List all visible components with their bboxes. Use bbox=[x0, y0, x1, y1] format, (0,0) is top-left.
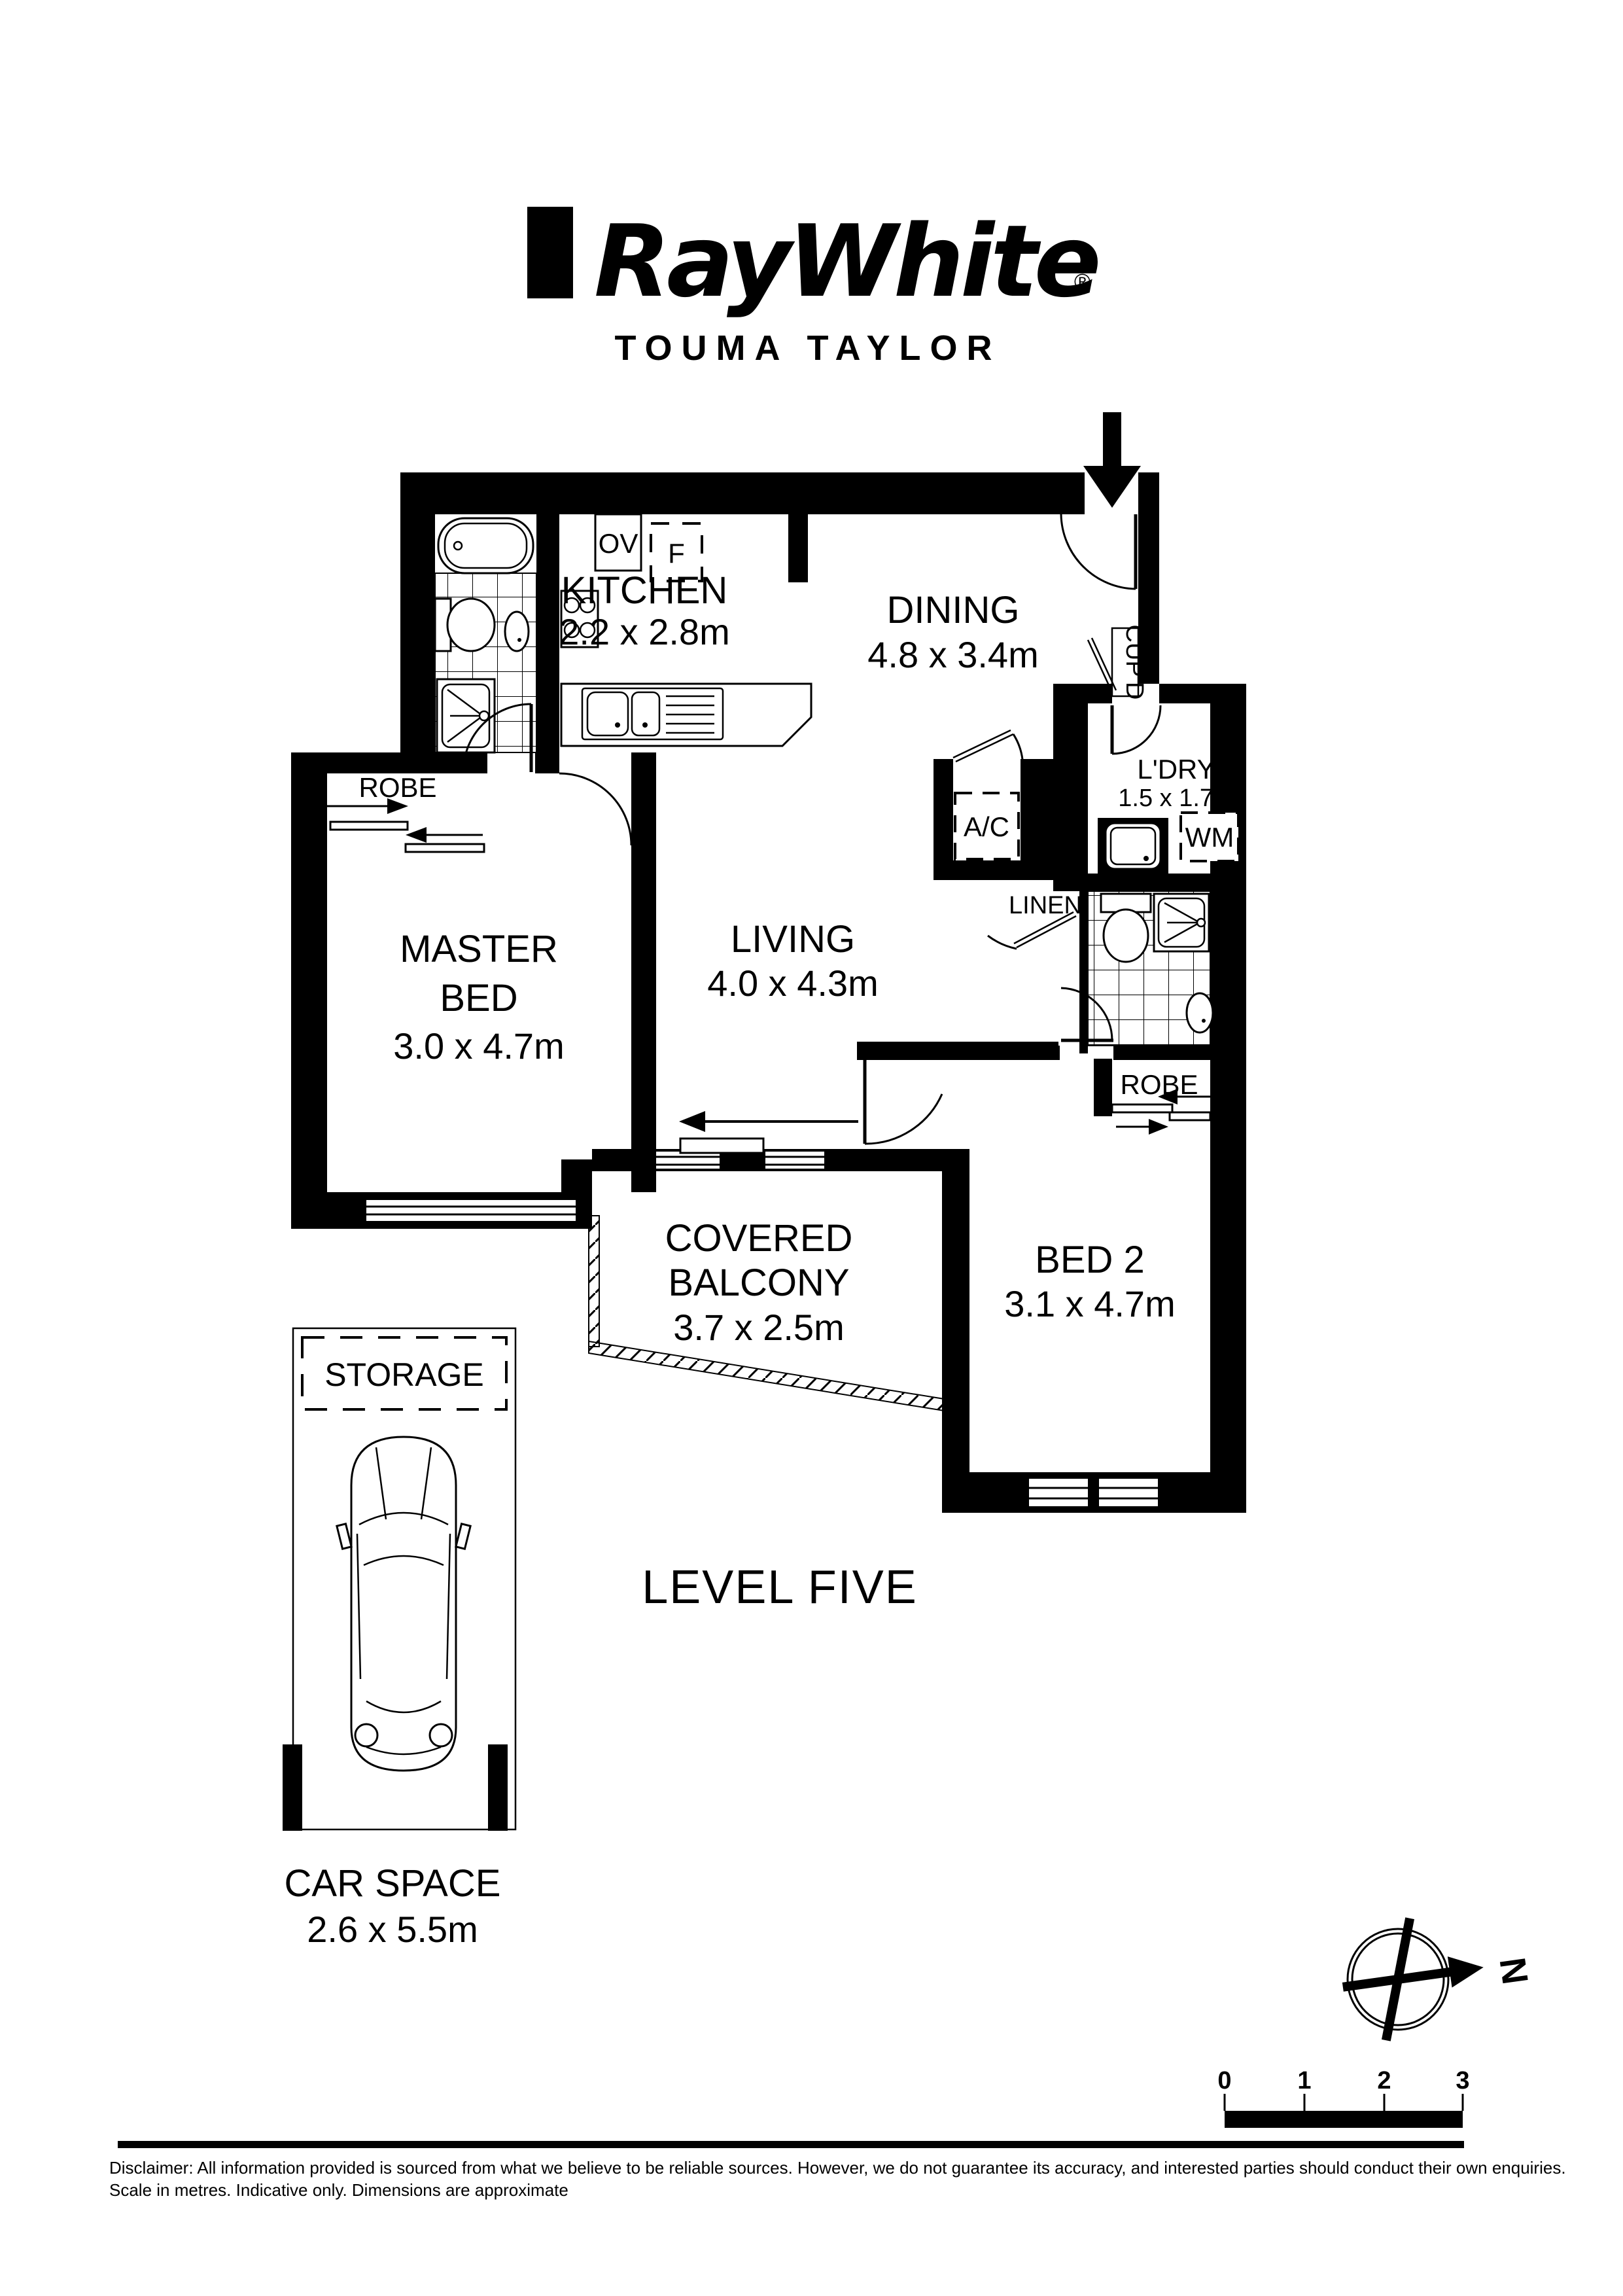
bathtub-icon bbox=[438, 518, 533, 573]
robe-bed2-label: ROBE bbox=[1120, 1069, 1198, 1100]
laundry-door bbox=[1112, 705, 1161, 754]
living-room: LIVING 4.0 x 4.3m bbox=[707, 918, 878, 1004]
linen-label: LINEN bbox=[1009, 892, 1082, 919]
car-space: STORAGE CAR SPACE 2.6 x 5.5m bbox=[283, 1328, 515, 1950]
footer-divider bbox=[118, 2141, 1464, 2148]
brand-square-icon bbox=[527, 207, 573, 298]
laundry-tub-icon bbox=[1098, 818, 1168, 874]
covered-balcony: COVERED BALCONY 3.7 x 2.5m bbox=[589, 1216, 944, 1411]
room-dims-laundry: 1.5 x 1.7m bbox=[1118, 785, 1234, 812]
slide-arrow-icon bbox=[679, 1111, 705, 1132]
room-label-balcony-2: BALCONY bbox=[668, 1262, 849, 1304]
room-label-living: LIVING bbox=[731, 918, 855, 961]
bathroom-1 bbox=[435, 518, 536, 772]
robe-master-sliders bbox=[322, 798, 484, 852]
footer: Disclaimer: All information provided is … bbox=[109, 2141, 1566, 2200]
storage-label: STORAGE bbox=[324, 1356, 484, 1393]
slide-arrow-icon bbox=[406, 827, 427, 843]
oven-label: OV bbox=[599, 528, 638, 559]
basin-icon bbox=[505, 612, 529, 651]
fridge-label: F bbox=[668, 538, 685, 569]
bed2-door bbox=[865, 1060, 942, 1144]
office-name: TOUMA TAYLOR bbox=[614, 328, 1001, 368]
room-dims-master: 3.0 x 4.7m bbox=[393, 1025, 564, 1067]
kitchen-counter bbox=[561, 684, 811, 746]
brand-logo-text: RayWhite bbox=[594, 203, 1098, 319]
level-label: LEVEL FIVE bbox=[642, 1561, 918, 1614]
room-label-balcony-1: COVERED bbox=[665, 1217, 853, 1260]
scale-tick-3: 3 bbox=[1456, 2067, 1469, 2094]
balcony-rail bbox=[589, 1216, 599, 1347]
bedroom-2: ROBE BED 2 3.1 x 4.7m bbox=[865, 1060, 1210, 1324]
registered-mark: ® bbox=[1074, 270, 1091, 294]
basin-icon bbox=[1187, 993, 1213, 1033]
aircon-cupboard: A/C bbox=[953, 730, 1023, 859]
balcony-sliding-door bbox=[679, 1111, 858, 1153]
slide-arrow-icon bbox=[1149, 1119, 1168, 1135]
room-dims-bed2: 3.1 x 4.7m bbox=[1004, 1283, 1175, 1324]
north-label: N bbox=[1492, 1955, 1536, 1987]
disclaimer-line2: Scale in metres. Indicative only. Dimens… bbox=[109, 2180, 568, 2200]
master-bedroom: ROBE MASTER BED 3.0 x 4.7m bbox=[322, 772, 631, 1067]
washing-machine-box: WM bbox=[1181, 813, 1238, 861]
shower-icon bbox=[1154, 894, 1209, 951]
master-window bbox=[366, 1200, 576, 1221]
room-dims-balcony: 3.7 x 2.5m bbox=[673, 1307, 844, 1348]
car-space-label: CAR SPACE bbox=[285, 1862, 501, 1905]
washing-machine-label: WM bbox=[1185, 822, 1234, 853]
balcony-rail bbox=[589, 1341, 944, 1411]
room-label-kitchen: KITCHEN bbox=[561, 569, 728, 612]
room-dims-living: 4.0 x 4.3m bbox=[707, 963, 878, 1004]
scale-tick-0: 0 bbox=[1217, 2067, 1231, 2094]
master-door bbox=[559, 773, 631, 845]
scale-bar: 0 1 2 3 bbox=[1217, 2067, 1469, 2128]
car-icon bbox=[337, 1437, 470, 1771]
toilet-icon bbox=[1101, 894, 1151, 962]
scale-tick-2: 2 bbox=[1377, 2067, 1391, 2094]
dining: DINING 4.8 x 3.4m bbox=[867, 589, 1038, 675]
disclaimer-line1: Disclaimer: All information provided is … bbox=[109, 2158, 1566, 2178]
car-space-dims: 2.6 x 5.5m bbox=[307, 1909, 478, 1950]
room-label-laundry: L'DRY bbox=[1137, 754, 1215, 785]
floorplan-page: RayWhite ® TOUMA TAYLOR bbox=[0, 0, 1623, 2296]
brand-logo: RayWhite ® TOUMA TAYLOR bbox=[527, 203, 1098, 368]
toilet-icon bbox=[435, 599, 495, 651]
room-dims-dining: 4.8 x 3.4m bbox=[867, 634, 1038, 675]
room-label-master-2: BED bbox=[440, 977, 517, 1019]
linen-cupboard: LINEN bbox=[988, 892, 1082, 949]
room-label-dining: DINING bbox=[887, 589, 1020, 631]
aircon-label: A/C bbox=[964, 811, 1009, 842]
entry-arrow-icon bbox=[1083, 412, 1141, 508]
shower-icon bbox=[437, 679, 495, 752]
cupboard-label: CUP'D bbox=[1121, 625, 1148, 700]
compass-icon: N bbox=[1340, 1917, 1536, 2041]
kitchen: OV F bbox=[559, 514, 811, 746]
oven-box: OV bbox=[595, 514, 641, 571]
scale-tick-1: 1 bbox=[1297, 2067, 1311, 2094]
room-label-bed2: BED 2 bbox=[1035, 1239, 1145, 1281]
room-dims-kitchen: 2.2 x 2.8m bbox=[559, 611, 729, 652]
robe-master-label: ROBE bbox=[358, 772, 436, 803]
room-label-master-1: MASTER bbox=[400, 928, 558, 970]
